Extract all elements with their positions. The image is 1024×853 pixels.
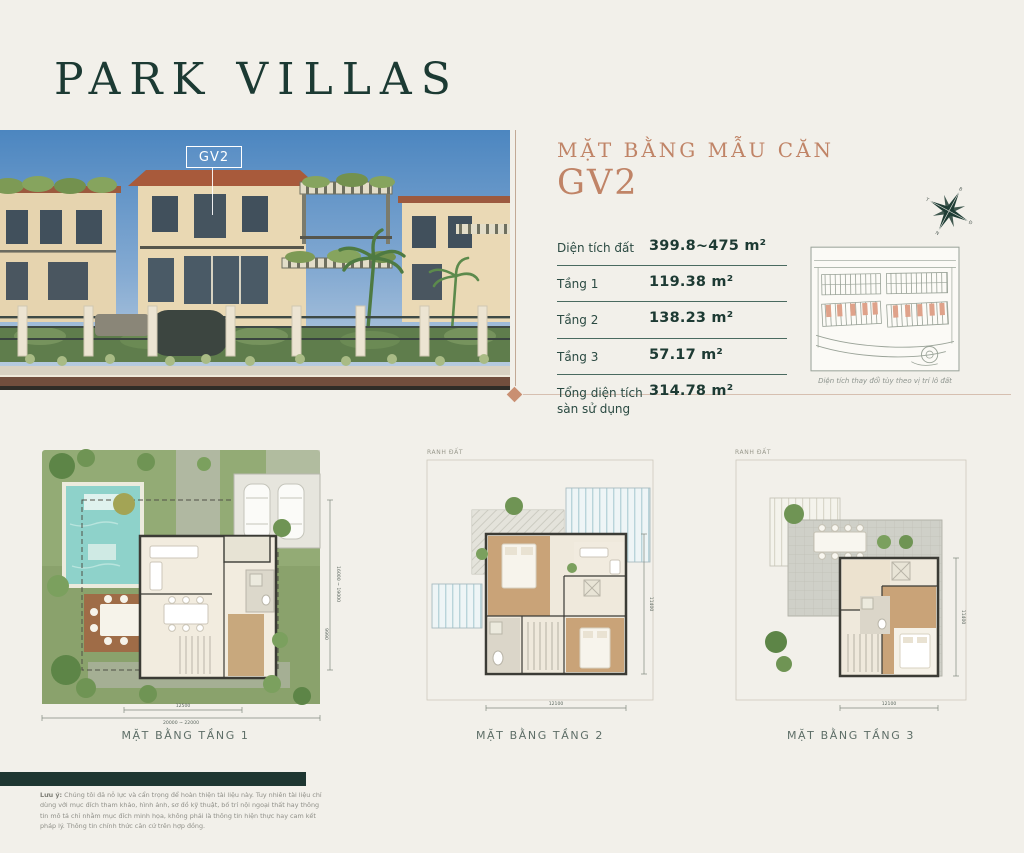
svg-text:16000 ~ 19000: 16000 ~ 19000 — [335, 566, 341, 602]
floorplan-level-3: 12100 11400 — [732, 446, 970, 718]
vertical-divider — [515, 130, 516, 386]
boundary-label: RANH ĐẤT — [735, 449, 771, 456]
table-row: Tổng diện tích sàn sử dụng 314.78 m² — [557, 374, 787, 426]
floorplan-level-2: 12100 11400 — [424, 446, 656, 718]
row-value: 119.38 m² — [649, 274, 733, 290]
plan-caption-level-3: MẶT BẰNG TẦNG 3 — [732, 729, 970, 742]
brochure-page: PARK VILLAS — [0, 0, 1024, 853]
svg-text:11400: 11400 — [648, 597, 654, 612]
row-label: Tầng 2 — [557, 310, 649, 328]
site-location-map — [810, 246, 960, 372]
floorplan-level-1: 12500 20000 ~ 22000 16000 ~ 19000 9990 — [28, 444, 343, 724]
svg-text:11400: 11400 — [960, 610, 966, 625]
spec-heading: MẶT BẰNG MẪU CĂN — [557, 138, 834, 162]
svg-text:B: B — [958, 186, 964, 193]
table-row: Tầng 1 119.38 m² — [557, 265, 787, 301]
svg-text:12100: 12100 — [549, 701, 564, 707]
row-value: 57.17 m² — [649, 347, 723, 363]
table-row: Tầng 3 57.17 m² — [557, 338, 787, 374]
disclaimer-lead: Lưu ý: — [40, 791, 62, 799]
svg-text:N: N — [934, 230, 940, 237]
plan-caption-level-2: MẶT BẰNG TẦNG 2 — [424, 729, 656, 742]
row-label: Diện tích đất — [557, 238, 649, 256]
row-value: 314.78 m² — [649, 383, 733, 399]
row-label: Tầng 1 — [557, 274, 649, 292]
svg-text:T: T — [924, 196, 930, 203]
row-value: 399.8~475 m² — [649, 238, 766, 254]
svg-text:9990: 9990 — [323, 628, 329, 640]
boundary-label: RANH ĐẤT — [427, 449, 463, 456]
villa-photo-art — [0, 130, 510, 390]
disclaimer-body: Chúng tôi đã nỗ lực và cẩn trọng để hoàn… — [40, 791, 322, 830]
photo-tag-leader-line — [212, 167, 213, 215]
plan-caption-level-1: MẶT BẰNG TẦNG 1 — [28, 729, 343, 742]
spec-unit-code: GV2 — [557, 163, 639, 203]
svg-text:Đ: Đ — [967, 220, 973, 227]
photo-unit-tag: GV2 — [186, 146, 242, 168]
footer-accent-bar — [0, 772, 306, 786]
area-spec-table: Diện tích đất 399.8~475 m² Tầng 1 119.38… — [557, 230, 787, 426]
row-label: Tổng diện tích sàn sử dụng — [557, 383, 649, 417]
page-title: PARK VILLAS — [54, 54, 460, 105]
row-value: 138.23 m² — [649, 310, 733, 326]
table-row: Tầng 2 138.23 m² — [557, 301, 787, 337]
table-row: Diện tích đất 399.8~475 m² — [557, 230, 787, 265]
map-caption: Diện tích thay đổi tùy theo vị trí lô đấ… — [800, 377, 970, 385]
svg-text:12500: 12500 — [176, 703, 191, 709]
disclaimer-note: Lưu ý: Chúng tôi đã nỗ lực và cẩn trọng … — [40, 790, 328, 831]
svg-text:20000 ~ 22000: 20000 ~ 22000 — [163, 720, 199, 724]
villa-photo — [0, 130, 510, 390]
row-label: Tầng 3 — [557, 347, 649, 365]
svg-text:12100: 12100 — [882, 701, 897, 707]
compass-icon: B Đ N T — [922, 184, 976, 238]
